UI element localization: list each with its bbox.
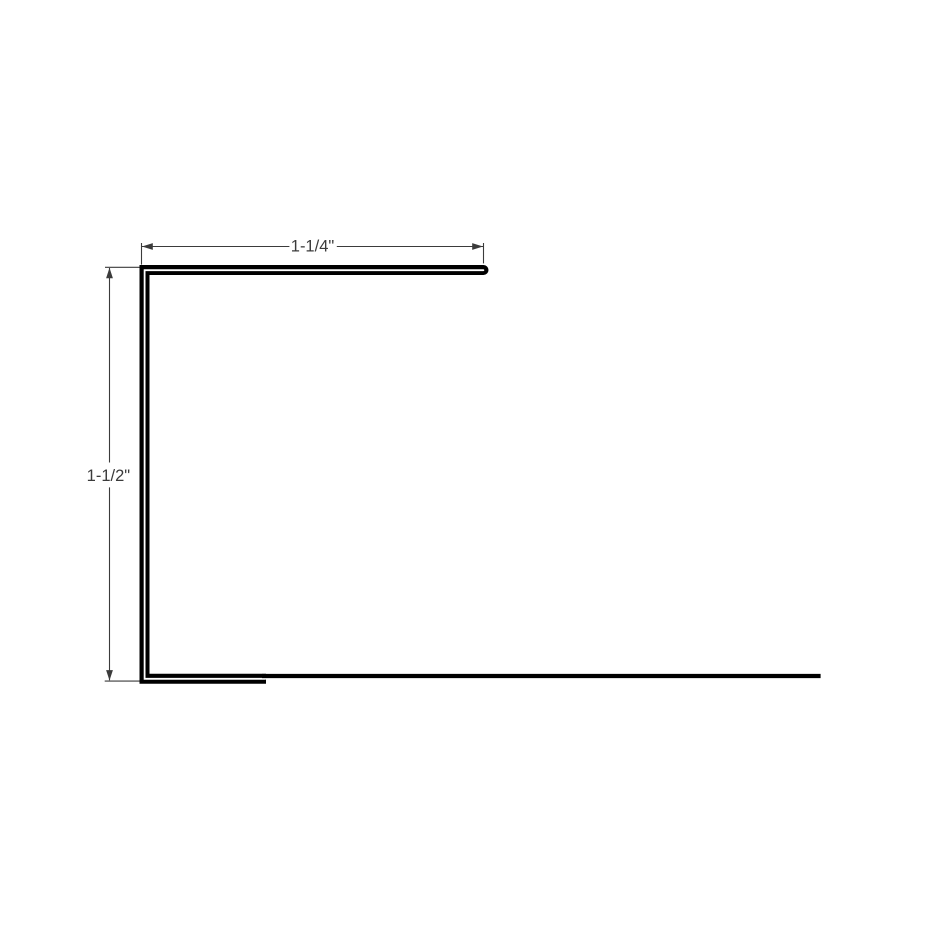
svg-text:1-1/4": 1-1/4" — [291, 237, 335, 255]
svg-text:1-1/2": 1-1/2" — [87, 467, 131, 485]
